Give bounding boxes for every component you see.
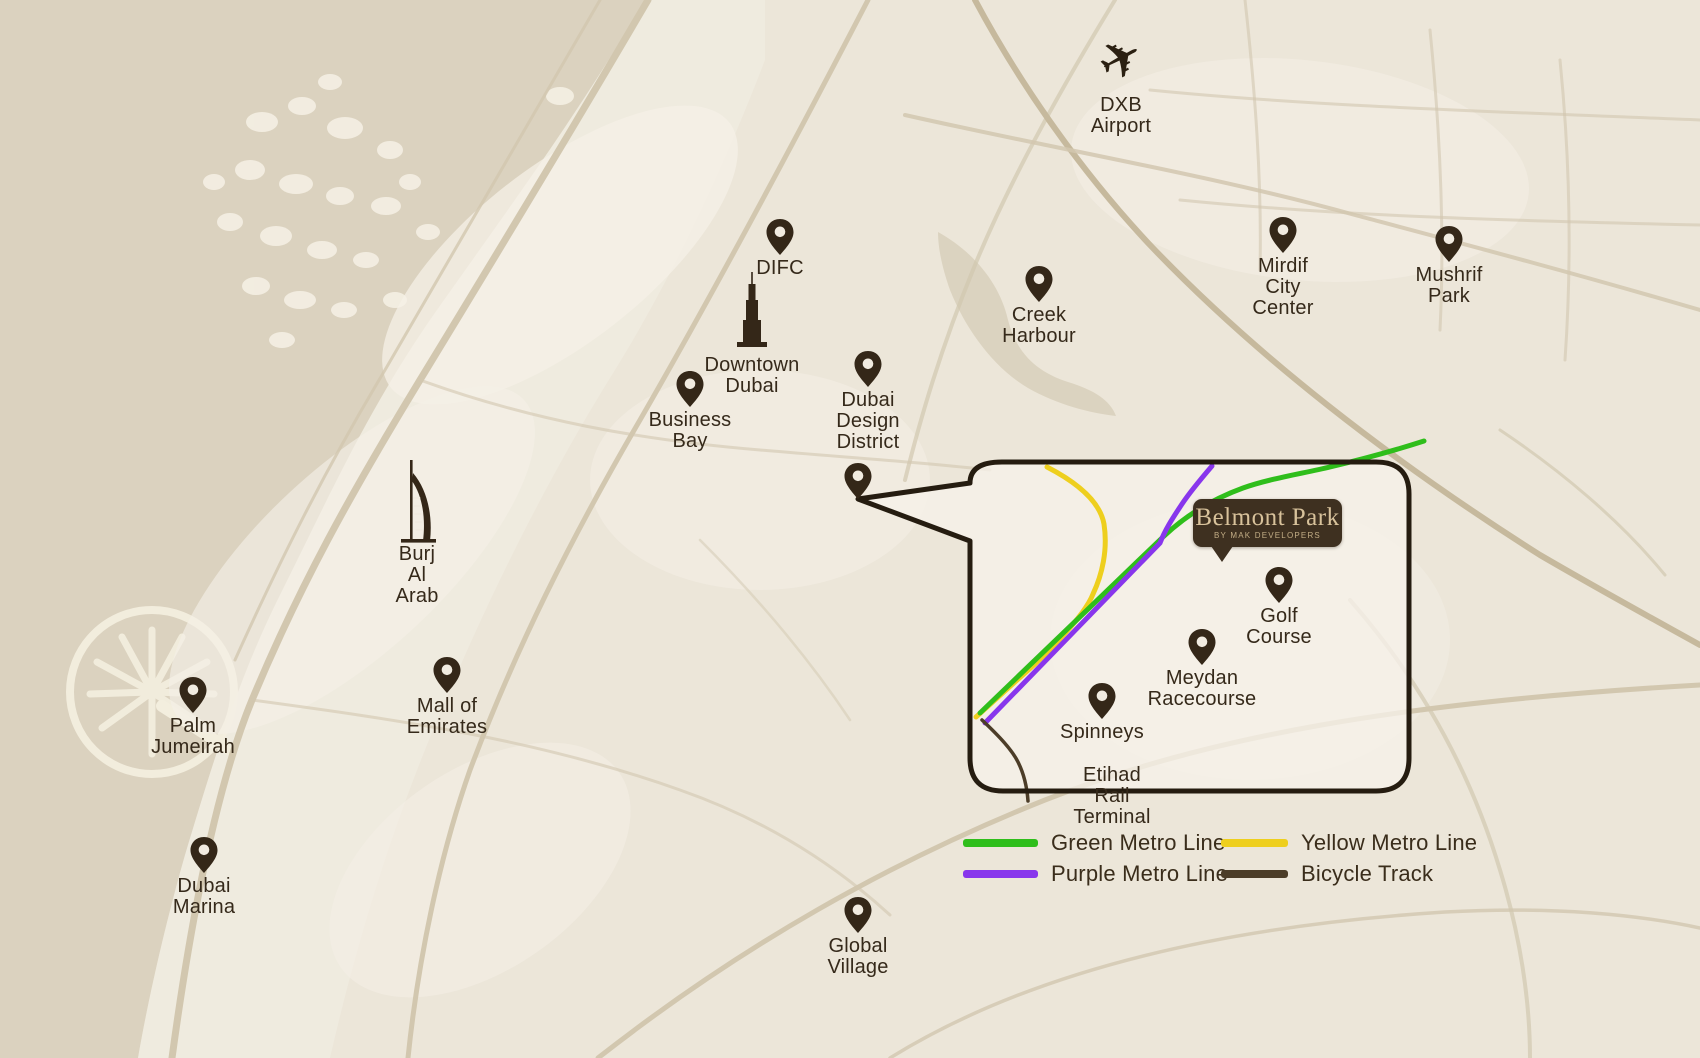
landmark-label: Spinneys xyxy=(1060,722,1144,743)
logo-pointer-tail xyxy=(1211,546,1233,562)
burj-al-arab-icon xyxy=(396,457,440,545)
dubai-location-map: ✈DXB Airport DIFC Downtown Dubai Busines… xyxy=(0,0,1700,1058)
map-pin-icon xyxy=(842,462,874,500)
landmark-label: Mall of Emirates xyxy=(407,696,488,738)
map-pin-icon xyxy=(1263,566,1295,604)
airplane-icon: ✈ xyxy=(1075,17,1167,104)
legend-item-yellow-metro: Yellow Metro Line xyxy=(1221,828,1477,858)
green-line-swatch xyxy=(963,839,1038,847)
map-pin-icon xyxy=(674,370,706,408)
landmark-label: Mushrif Park xyxy=(1416,265,1483,307)
belmont-park-logo-title: Belmont Park xyxy=(1195,505,1339,531)
landmark-label: DXB Airport xyxy=(1091,95,1151,137)
map-pin-icon xyxy=(1186,628,1218,666)
purple-line-swatch xyxy=(963,870,1038,878)
legend-item-bicycle-track: Bicycle Track xyxy=(1221,859,1477,889)
landmark-label: Golf Course xyxy=(1246,606,1312,648)
landmark-label: Dubai Design District xyxy=(836,390,899,453)
legend-label: Purple Metro Line xyxy=(1051,861,1228,887)
legend-item-green-metro: Green Metro Line xyxy=(963,828,1221,858)
map-pin-icon xyxy=(1433,225,1465,263)
legend-label: Green Metro Line xyxy=(1051,830,1225,856)
landmark-label: Mirdif City Center xyxy=(1252,256,1313,319)
landmark-label: Meydan Racecourse xyxy=(1148,668,1257,710)
map-pin-icon xyxy=(177,676,209,714)
map-pin-icon xyxy=(1023,265,1055,303)
map-pin-icon xyxy=(188,836,220,874)
landmark-label: Global Village xyxy=(827,936,888,978)
yellow-line-swatch xyxy=(1221,839,1288,847)
belmont-park-logo-subtitle: BY MAK DEVELOPERS xyxy=(1214,531,1321,541)
landmarks-layer: ✈DXB Airport DIFC Downtown Dubai Busines… xyxy=(0,0,1700,1058)
landmark-label: Downtown Dubai xyxy=(705,355,800,397)
map-pin-icon xyxy=(431,656,463,694)
legend-item-purple-metro: Purple Metro Line xyxy=(963,859,1221,889)
map-pin-icon xyxy=(764,218,796,256)
landmark-label: Etihad Rail Terminal xyxy=(1073,765,1150,828)
legend-label: Bicycle Track xyxy=(1301,861,1433,887)
map-pin-icon xyxy=(842,896,874,934)
belmont-park-logo: Belmont Park BY MAK DEVELOPERS xyxy=(1193,499,1342,547)
landmark-label: Business Bay xyxy=(649,410,732,452)
map-legend: Green Metro Line Yellow Metro Line Purpl… xyxy=(963,828,1477,889)
map-pin-icon xyxy=(1086,682,1118,720)
landmark-label: Dubai Marina xyxy=(173,876,235,918)
landmark-label: Creek Harbour xyxy=(1002,305,1076,347)
legend-label: Yellow Metro Line xyxy=(1301,830,1477,856)
landmark-label: Palm Jumeirah xyxy=(151,716,235,758)
map-pin-icon xyxy=(852,350,884,388)
map-pin-icon xyxy=(1267,216,1299,254)
burj-khalifa-icon xyxy=(732,270,772,356)
landmark-label: Burj Al Arab xyxy=(395,544,438,607)
bicycle-track-swatch xyxy=(1221,870,1288,878)
